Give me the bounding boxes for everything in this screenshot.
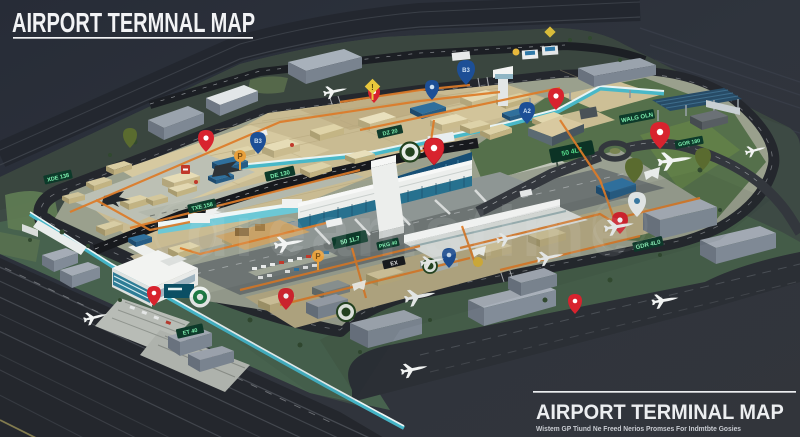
svg-text:A2: A2 [523, 109, 531, 115]
svg-text:B3: B3 [462, 68, 470, 74]
svg-text:P: P [237, 152, 243, 161]
svg-text:AIRPORT TERMINAL MAP: AIRPORT TERMINAL MAP [536, 401, 784, 425]
svg-text:B3: B3 [254, 139, 262, 145]
svg-text:AIRPORT TERMNAL MAP: AIRPORT TERMNAL MAP [12, 8, 255, 39]
svg-text:!: ! [371, 83, 374, 92]
svg-text:Wistem GP Tiund Ne Freed Nerio: Wistem GP Tiund Ne Freed Nerios Promses … [536, 426, 741, 433]
svg-text:dreamstime: dreamstime [186, 193, 635, 272]
